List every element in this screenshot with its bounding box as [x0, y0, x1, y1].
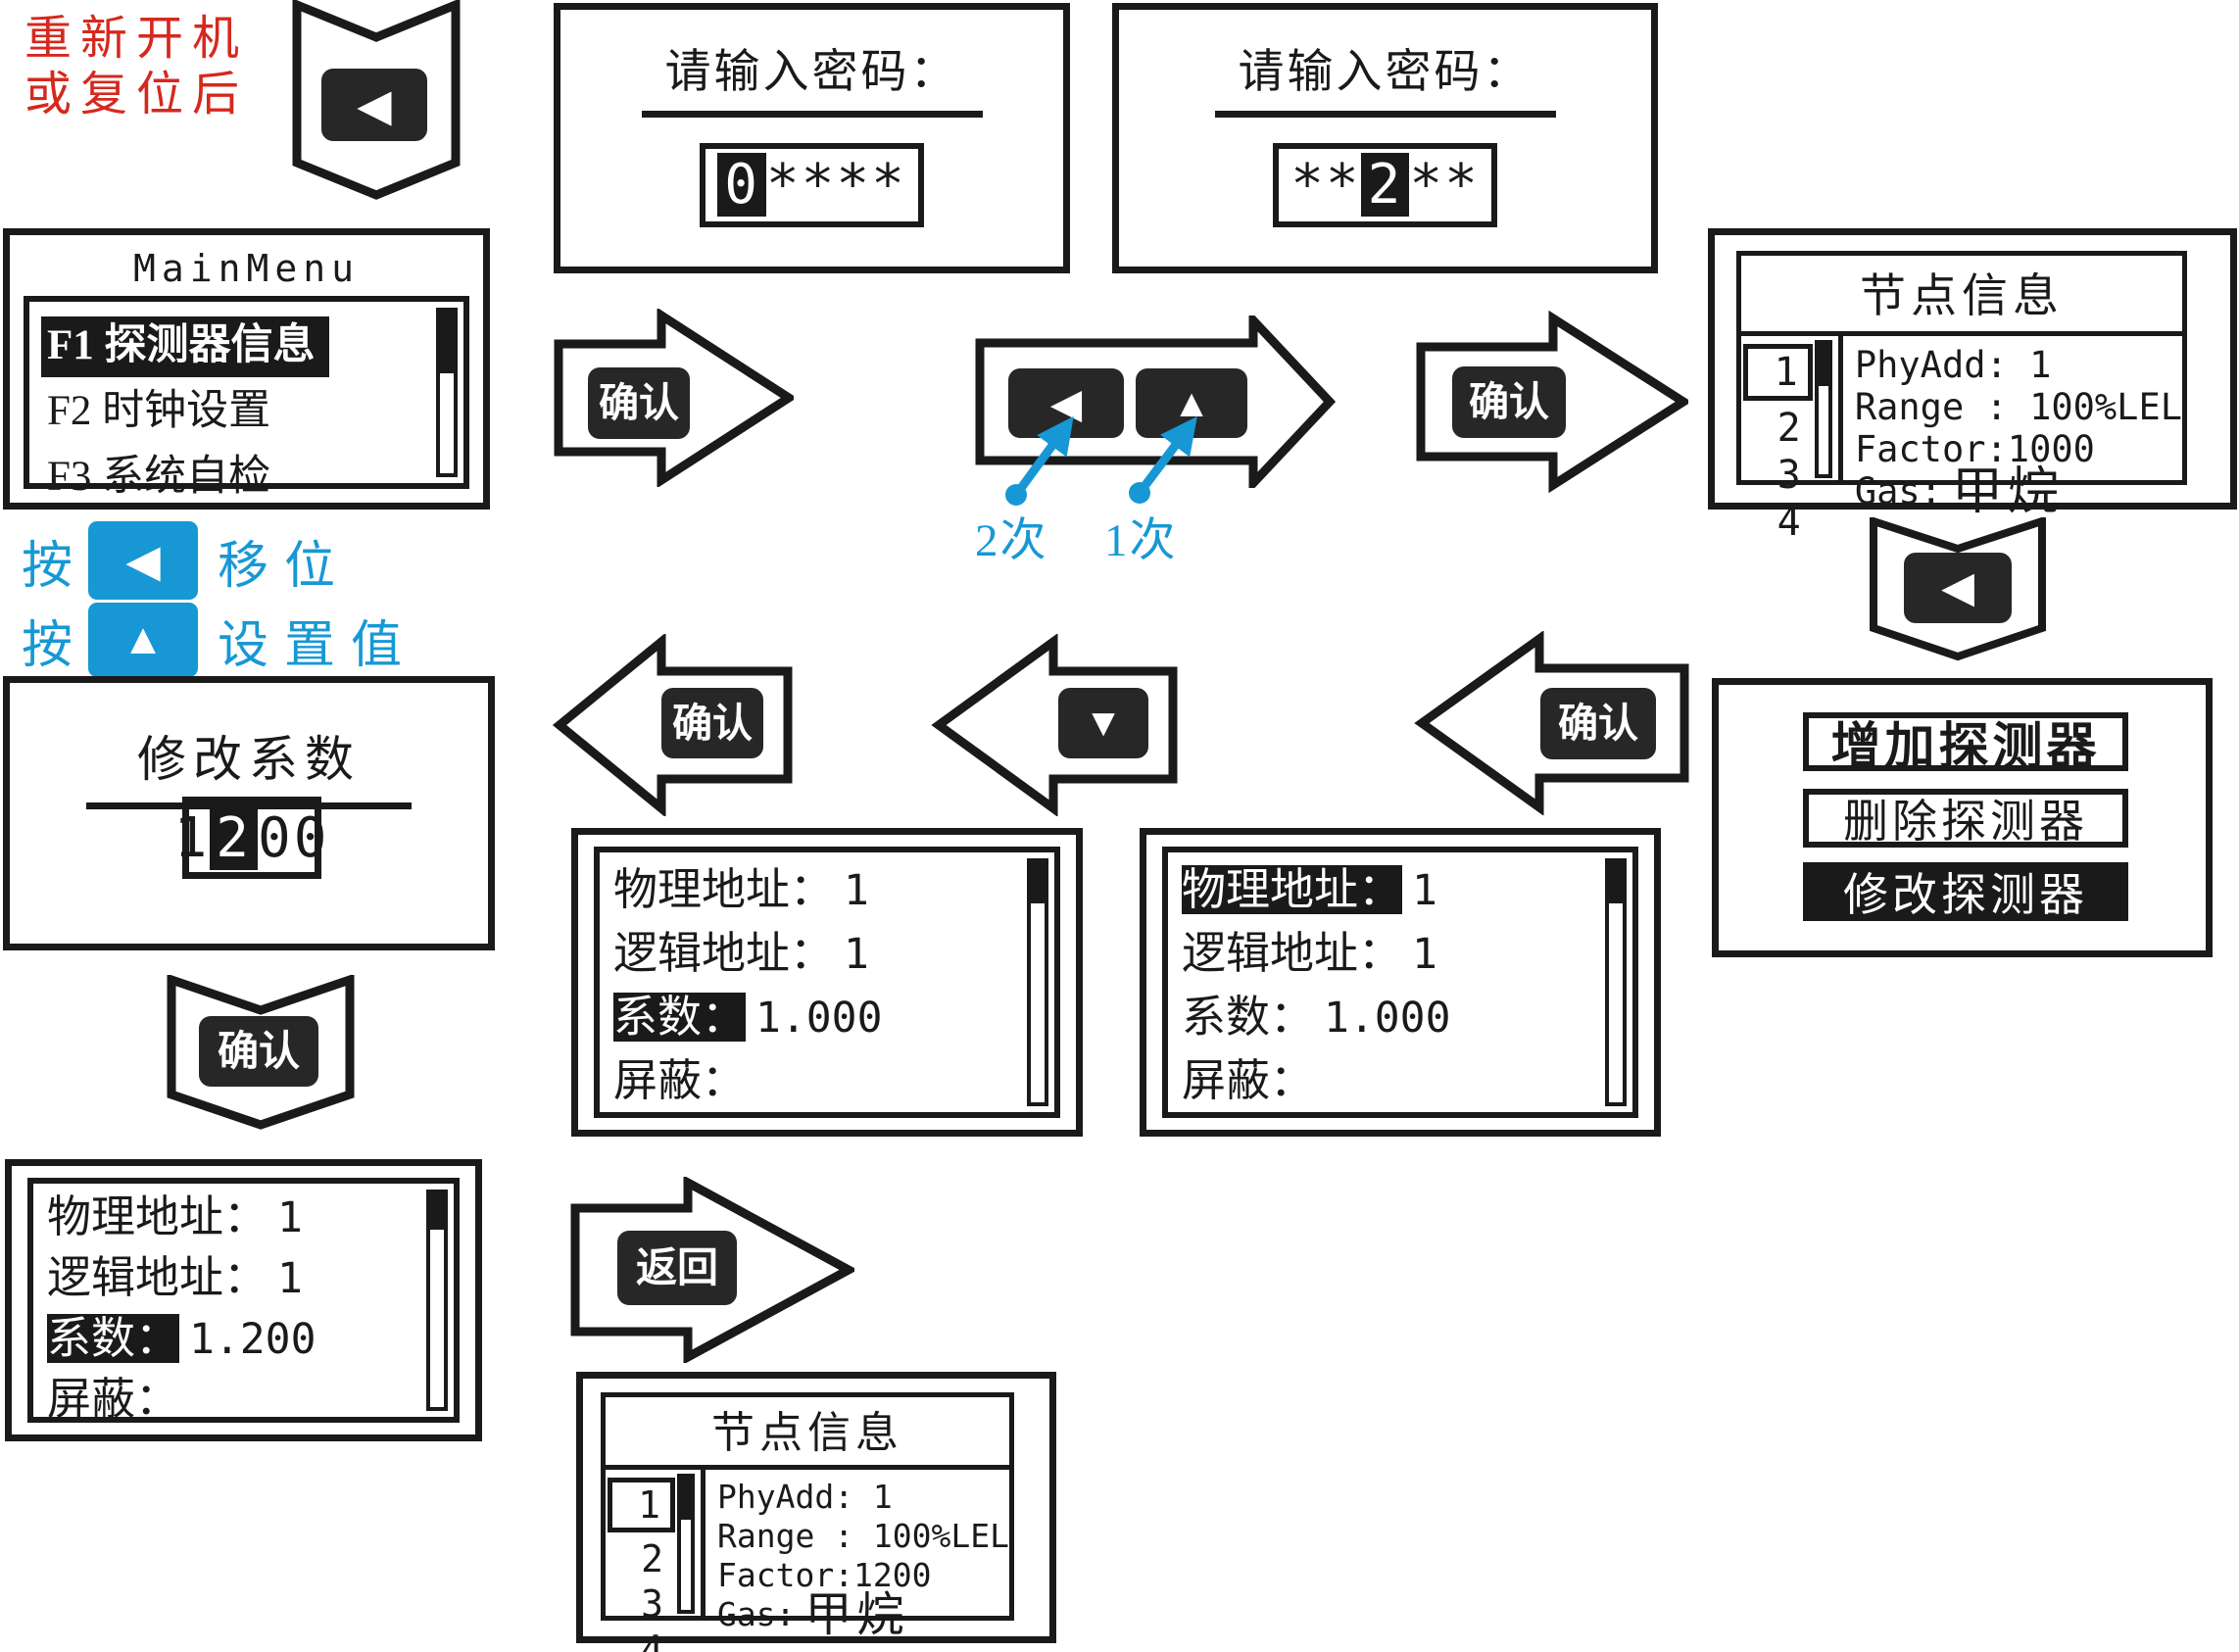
confirm-key-label: 确认 [599, 383, 679, 423]
scrollbar[interactable] [1605, 858, 1627, 1106]
confirm-banner: 确认 [167, 975, 355, 1132]
detail-screen-factor-updated: 物理地址：1 逻辑地址：1 系数：1.200 屏蔽： [5, 1159, 482, 1441]
detail-row: 系数：1.200 [47, 1309, 403, 1370]
node-gas-line: Gas:甲烷 [717, 1595, 1009, 1635]
node-list-item[interactable]: 2 [1741, 405, 1813, 452]
flow-arrow-left-confirm-2: 确认 [1414, 631, 1689, 815]
restart-note-line1: 重新开机 [24, 12, 248, 68]
node-detail: PhyAdd: 1 Range : 100%LEL Factor:1200 Ga… [701, 1470, 1009, 1616]
edit-factor-screen: 修改系数 1200 [3, 676, 495, 950]
back-key-button[interactable]: 返回 [617, 1231, 737, 1305]
row-value: 1 [1412, 930, 1437, 979]
left-key-button-blue[interactable]: ◀ [88, 521, 198, 600]
detail-row: 物理地址：1 [613, 858, 1003, 922]
flow-arrow-left-down: ▼ [931, 634, 1178, 816]
menu-item-modify-detector[interactable]: 修改探测器 [1803, 862, 2128, 921]
node-info-panel: 节点信息 1 2 3 4 PhyAdd: 1 Range : 100%LEL F… [1736, 251, 2187, 485]
row-label: 系数： [1182, 993, 1314, 1042]
confirm-key-button[interactable]: 确认 [588, 367, 690, 439]
left-arrow-icon: ◀ [1941, 566, 1974, 609]
factor-cursor-digit: 2 [210, 806, 258, 870]
flow-arrow-right-confirm-2: 确认 [1416, 311, 1688, 493]
row-label: 逻辑地址： [613, 929, 834, 978]
hint-press-shift: 按 ◀ 移位 [22, 517, 351, 604]
left-key-button[interactable]: ◀ [321, 69, 427, 141]
node-list-item[interactable]: 4 [606, 1627, 675, 1652]
shift-hint-label: 移位 [218, 524, 351, 598]
confirm-key-button[interactable]: 确认 [199, 1016, 318, 1087]
password-input[interactable]: **2** [1273, 143, 1497, 227]
detail-row: 屏蔽： [613, 1049, 1003, 1113]
detail-row: 屏蔽： [1182, 1049, 1582, 1113]
left-key-button[interactable]: ◀ [1904, 553, 2012, 623]
node-range-line: Range : 100%LEL [717, 1517, 1009, 1556]
node-info-body: 1 2 3 4 PhyAdd: 1 Range : 100%LEL Factor… [606, 1470, 1009, 1616]
node-list-item-selected[interactable]: 1 [608, 1478, 675, 1532]
node-banner: ◀ [1870, 517, 2046, 662]
row-label: 物理地址： [47, 1192, 268, 1241]
detail-row: 物理地址：1 [1182, 858, 1582, 922]
scrollbar-thumb[interactable] [1031, 862, 1045, 903]
restart-note-line2: 或复位后 [24, 68, 248, 123]
row-label-selected: 物理地址： [1182, 865, 1402, 914]
node-phyadd-line: PhyAdd: 1 [717, 1478, 1009, 1517]
row-value: 1 [844, 866, 869, 915]
flow-arrow-right-confirm-1: 确认 [554, 309, 794, 487]
detail-screen-factor-selected: 物理地址：1 逻辑地址：1 系数：1.000 屏蔽： [571, 828, 1083, 1137]
password-title-wrap: 请输入密码： [560, 33, 1063, 118]
node-gas-line: Gas:甲烷 [1855, 470, 2182, 513]
password-chars: **** [766, 153, 906, 217]
scrollbar-thumb[interactable] [1609, 862, 1623, 903]
node-detail: PhyAdd: 1 Range : 100%LEL Factor:1000 Ga… [1838, 336, 2182, 480]
confirm-key-label: 确认 [218, 1031, 300, 1072]
node-list-item[interactable]: 3 [1741, 452, 1813, 499]
down-arrow-icon: ▼ [1084, 704, 1123, 743]
gas-label: Gas: [717, 1595, 795, 1633]
menu-item-add-detector[interactable]: 增加探测器 [1803, 712, 2128, 771]
press-label: 按 [22, 604, 73, 677]
set-value-hint-label: 设置值 [218, 604, 417, 677]
menu-item-self-test[interactable]: F3 系统自检 [41, 448, 284, 509]
detail-panel: 物理地址：1 逻辑地址：1 系数：1.000 屏蔽： [594, 847, 1060, 1118]
node-range-line: Range : 100%LEL [1855, 386, 2182, 428]
node-info-title: 节点信息 [1741, 256, 2182, 336]
password-input[interactable]: 0**** [700, 143, 924, 227]
detail-row: 物理地址：1 [47, 1188, 403, 1248]
row-value: 1 [844, 930, 869, 979]
password-title: 请输入密码： [1215, 33, 1556, 118]
gas-label: Gas: [1855, 470, 1942, 512]
left-key-times-label: 2次 [975, 502, 1048, 569]
left-arrow-icon: ◀ [357, 82, 391, 127]
main-menu-title: MainMenu [10, 247, 483, 290]
detail-row: 系数：1.000 [1182, 986, 1582, 1049]
up-key-button-blue[interactable]: ▲ [88, 603, 198, 677]
restart-banner: ◀ [292, 0, 461, 201]
detail-row: 屏蔽： [47, 1370, 403, 1431]
row-label: 逻辑地址： [1182, 929, 1402, 978]
row-value: 1.000 [755, 994, 882, 1043]
detail-row: 逻辑地址：1 [613, 922, 1003, 986]
factor-digits: 00 [258, 806, 329, 870]
flow-arrow-right-back: 返回 [570, 1177, 854, 1363]
main-menu-screen: MainMenu F1 探测器信息 F2 时钟设置 F3 系统自检 [3, 228, 490, 510]
detail-row: 逻辑地址：1 [1182, 922, 1582, 986]
scrollbar[interactable] [677, 1474, 695, 1614]
password-cursor-char: 2 [1361, 153, 1410, 217]
row-label: 物理地址： [613, 865, 834, 914]
node-info-body: 1 2 3 4 PhyAdd: 1 Range : 100%LEL Factor… [1741, 336, 2182, 480]
up-key-times-label: 1次 [1104, 502, 1178, 569]
menu-item-clock-setting[interactable]: F2 时钟设置 [41, 382, 284, 443]
password-chars: ** [1409, 153, 1479, 217]
detail-panel: 物理地址：1 逻辑地址：1 系数：1.200 屏蔽： [27, 1178, 460, 1423]
node-phyadd-line: PhyAdd: 1 [1855, 344, 2182, 386]
node-list: 1 2 3 4 [1741, 336, 1813, 480]
password-cursor-char: 0 [717, 153, 766, 217]
scrollbar[interactable] [1815, 340, 1832, 478]
node-list: 1 2 3 4 [606, 1470, 675, 1616]
down-key-button[interactable]: ▼ [1058, 688, 1148, 758]
scrollbar-thumb[interactable] [430, 1193, 444, 1230]
node-info-screen-after: 节点信息 1 2 3 4 PhyAdd: 1 Range : 100%LEL F… [576, 1372, 1056, 1643]
detector-menu-screen: 增加探测器 删除探测器 修改探测器 [1712, 678, 2213, 957]
detail-row: 系数：1.000 [613, 986, 1003, 1049]
password-screen-second: 请输入密码： **2** [1112, 3, 1658, 273]
menu-item-detector-info[interactable]: F1 探测器信息 [41, 316, 329, 377]
row-label-selected: 系数： [613, 993, 746, 1042]
row-label: 屏蔽： [613, 1056, 746, 1105]
detail-row: 逻辑地址：1 [47, 1248, 403, 1309]
up-arrow-icon: ▲ [122, 615, 165, 664]
menu-flow-diagram: 重新开机 或复位后 ◀ 请输入密码： 0**** 请输入密码： **2** Ma… [0, 0, 2239, 1652]
row-value: 1 [1412, 866, 1437, 915]
row-label: 屏蔽： [47, 1375, 179, 1424]
hint-press-set: 按 ▲ 设置值 [22, 600, 417, 680]
back-key-label: 返回 [636, 1247, 718, 1288]
factor-digits: 1 [174, 806, 211, 870]
node-list-item[interactable]: 2 [606, 1536, 675, 1581]
factor-value-input[interactable]: 1200 [182, 797, 321, 879]
node-list-item-selected[interactable]: 1 [1743, 344, 1813, 401]
confirm-key-label: 确认 [1469, 382, 1549, 422]
password-title: 请输入密码： [642, 33, 983, 118]
scrollbar-thumb[interactable] [440, 312, 454, 373]
left-arrow-icon: ◀ [125, 534, 160, 587]
confirm-key-button[interactable]: 确认 [661, 688, 763, 758]
gas-value: 甲烷 [804, 1589, 908, 1641]
row-value: 1 [277, 1254, 303, 1303]
confirm-key-button[interactable]: 确认 [1452, 366, 1566, 438]
row-value: 1.200 [189, 1315, 316, 1364]
row-value: 1 [277, 1193, 303, 1242]
detail-screen-phys-selected: 物理地址：1 逻辑地址：1 系数：1.000 屏蔽： [1140, 828, 1661, 1137]
password-screen-first: 请输入密码： 0**** [554, 3, 1070, 273]
node-info-screen-before: 节点信息 1 2 3 4 PhyAdd: 1 Range : 100%LEL F… [1708, 228, 2237, 510]
row-value: 1.000 [1324, 994, 1450, 1043]
scrollbar[interactable] [436, 308, 458, 477]
press-label: 按 [22, 524, 73, 598]
scrollbar-thumb[interactable] [1819, 344, 1828, 386]
password-chars: ** [1290, 153, 1360, 217]
node-list-item[interactable]: 3 [606, 1581, 675, 1627]
scrollbar[interactable] [1027, 858, 1048, 1106]
confirm-key-label: 确认 [672, 704, 753, 744]
menu-item-delete-detector[interactable]: 删除探测器 [1803, 789, 2128, 848]
gas-value: 甲烷 [1952, 464, 2064, 520]
flow-arrow-left-confirm-1: 确认 [552, 634, 793, 816]
node-info-panel: 节点信息 1 2 3 4 PhyAdd: 1 Range : 100%LEL F… [601, 1392, 1014, 1621]
confirm-key-label: 确认 [1558, 704, 1638, 744]
detail-panel: 物理地址：1 逻辑地址：1 系数：1.000 屏蔽： [1162, 847, 1638, 1118]
scrollbar[interactable] [426, 1190, 448, 1411]
password-title-wrap: 请输入密码： [1119, 33, 1651, 118]
row-label: 屏蔽： [1182, 1056, 1314, 1105]
row-label: 逻辑地址： [47, 1253, 268, 1302]
scrollbar-thumb[interactable] [681, 1478, 691, 1520]
restart-note: 重新开机 或复位后 [24, 12, 248, 122]
confirm-key-button[interactable]: 确认 [1540, 688, 1656, 759]
main-menu-list: F1 探测器信息 F2 时钟设置 F3 系统自检 [24, 296, 469, 489]
node-list-item[interactable]: 4 [1741, 499, 1813, 546]
row-label-selected: 系数： [47, 1314, 179, 1363]
node-info-title: 节点信息 [606, 1397, 1009, 1470]
